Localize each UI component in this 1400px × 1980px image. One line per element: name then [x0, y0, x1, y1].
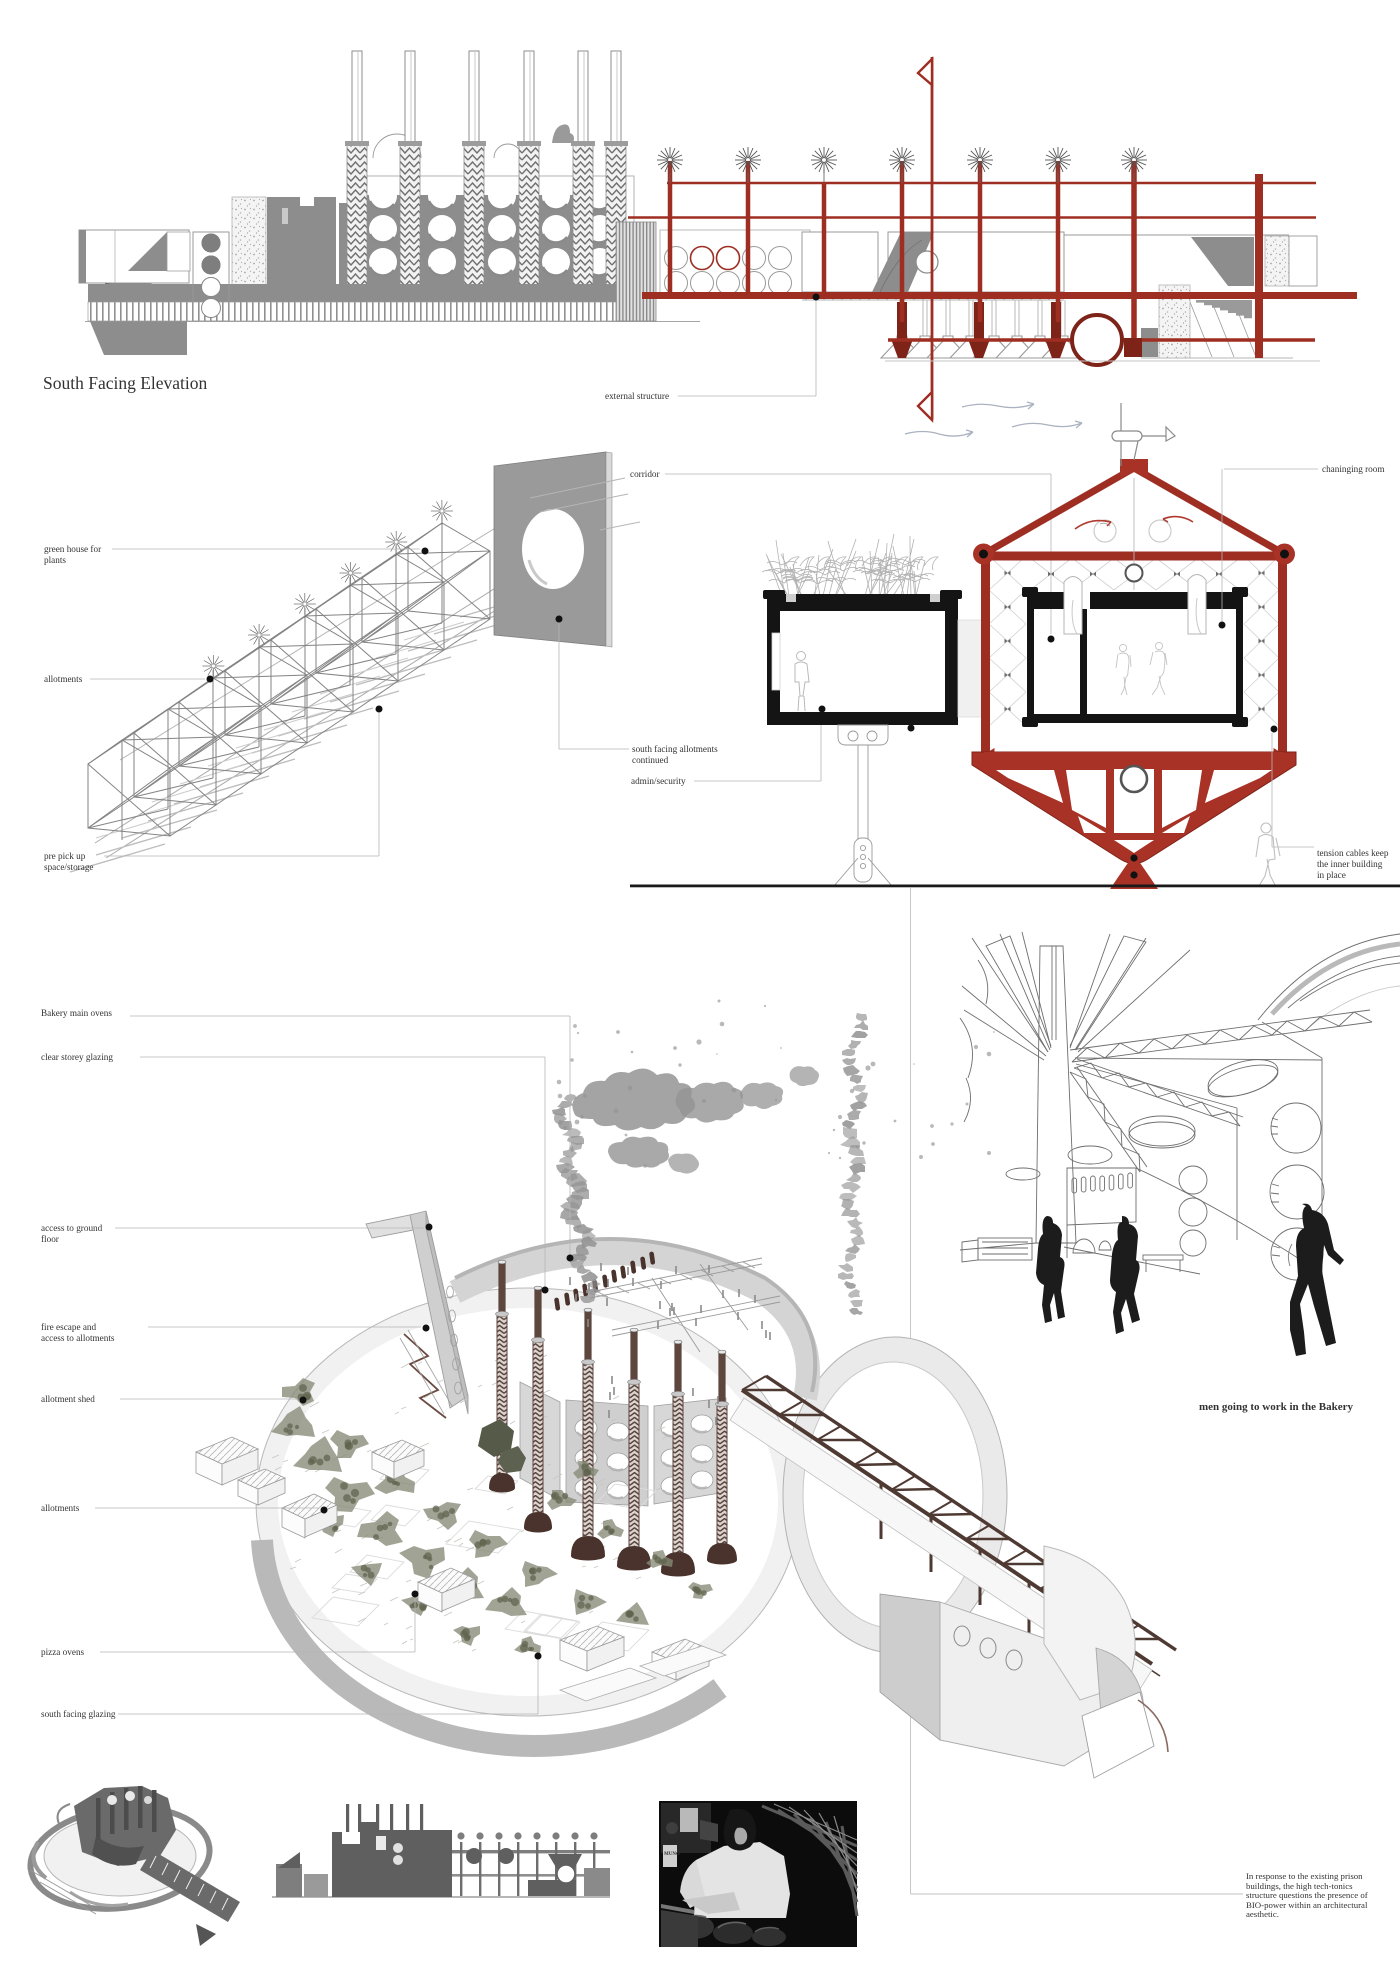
- svg-text:allotment shed: allotment shed: [41, 1394, 95, 1404]
- svg-text:MUNG: MUNG: [664, 1852, 680, 1857]
- svg-text:the inner building: the inner building: [1317, 859, 1383, 869]
- svg-text:floor: floor: [41, 1234, 59, 1244]
- svg-text:access to ground: access to ground: [41, 1223, 103, 1233]
- svg-text:allotments: allotments: [44, 674, 83, 684]
- svg-text:south facing glazing: south facing glazing: [41, 1709, 116, 1719]
- svg-text:fire escape and: fire escape and: [41, 1322, 96, 1332]
- svg-text:In response to the existing pr: In response to the existing prison: [1246, 1871, 1363, 1881]
- svg-text:external structure: external structure: [605, 391, 669, 401]
- svg-text:pre pick up: pre pick up: [44, 851, 86, 861]
- svg-text:clear storey glazing: clear storey glazing: [41, 1052, 113, 1062]
- svg-text:tension cables keep: tension cables keep: [1317, 848, 1389, 858]
- svg-text:aesthetic.: aesthetic.: [1246, 1909, 1279, 1919]
- svg-text:chaninging room: chaninging room: [1322, 464, 1385, 474]
- svg-text:south facing allotments: south facing allotments: [632, 744, 718, 754]
- svg-text:structure questions the presen: structure questions the presence of: [1246, 1890, 1368, 1900]
- svg-text:Bakery main ovens: Bakery main ovens: [41, 1008, 112, 1018]
- svg-text:pizza ovens: pizza ovens: [41, 1647, 85, 1657]
- svg-text:corridor: corridor: [630, 469, 660, 479]
- svg-text:space/storage: space/storage: [44, 862, 94, 872]
- svg-text:continued: continued: [632, 755, 669, 765]
- svg-text:South Facing Elevation: South Facing Elevation: [43, 373, 208, 393]
- svg-text:allotments: allotments: [41, 1503, 80, 1513]
- svg-text:plants: plants: [44, 555, 66, 565]
- svg-text:men going to work in the Baker: men going to work in the Bakery: [1199, 1401, 1354, 1413]
- svg-text:in place: in place: [1317, 870, 1346, 880]
- svg-text:access to allotments: access to allotments: [41, 1333, 115, 1343]
- svg-text:green house for: green house for: [44, 544, 101, 554]
- svg-text:admin/security: admin/security: [631, 776, 686, 786]
